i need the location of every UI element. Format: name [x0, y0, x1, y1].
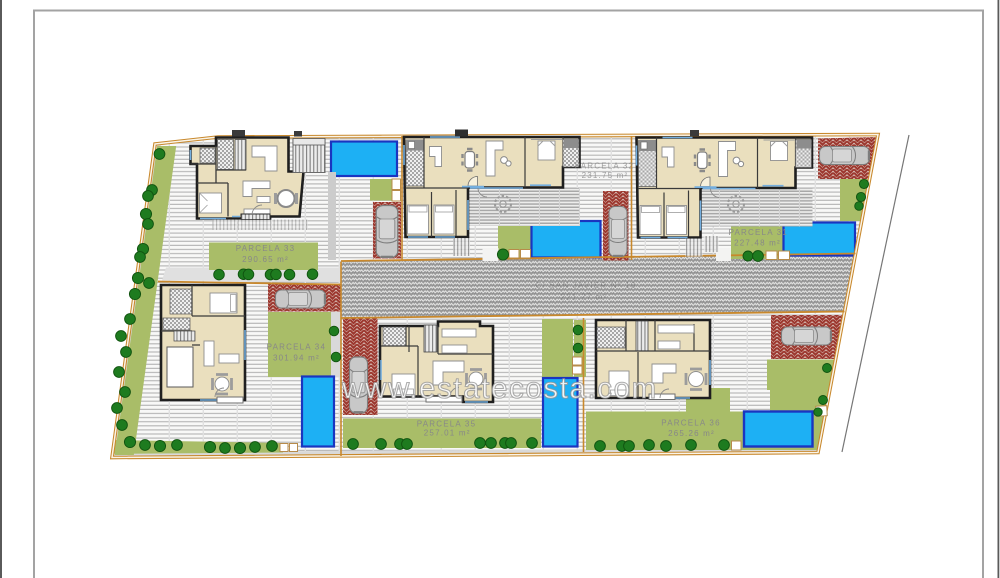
svg-text:PARCELA 35: PARCELA 35 [417, 420, 476, 429]
svg-text:290.65 m²: 290.65 m² [242, 255, 289, 264]
svg-text:231.75 m²: 231.75 m² [582, 171, 629, 180]
svg-text:301.94 m²: 301.94 m² [273, 354, 320, 363]
svg-text:PARCELA 31: PARCELA 31 [729, 228, 788, 237]
svg-text:227.48 m²: 227.48 m² [734, 239, 781, 248]
svg-text:www.estatecosta.com: www.estatecosta.com [341, 372, 658, 405]
svg-text:265.26 m²: 265.26 m² [668, 429, 715, 438]
svg-text:PARCELA 34: PARCELA 34 [267, 343, 326, 352]
svg-text:PARCELA 36: PARCELA 36 [661, 419, 720, 428]
svg-text:221.27 m²: 221.27 m² [561, 293, 608, 302]
svg-text:PARCELA 33: PARCELA 33 [236, 244, 295, 253]
svg-text:C/ SAN JAVIER Nº 18: C/ SAN JAVIER Nº 18 [535, 281, 636, 290]
svg-text:PARCELA 32: PARCELA 32 [575, 162, 634, 171]
svg-text:257.01 m²: 257.01 m² [424, 429, 471, 438]
